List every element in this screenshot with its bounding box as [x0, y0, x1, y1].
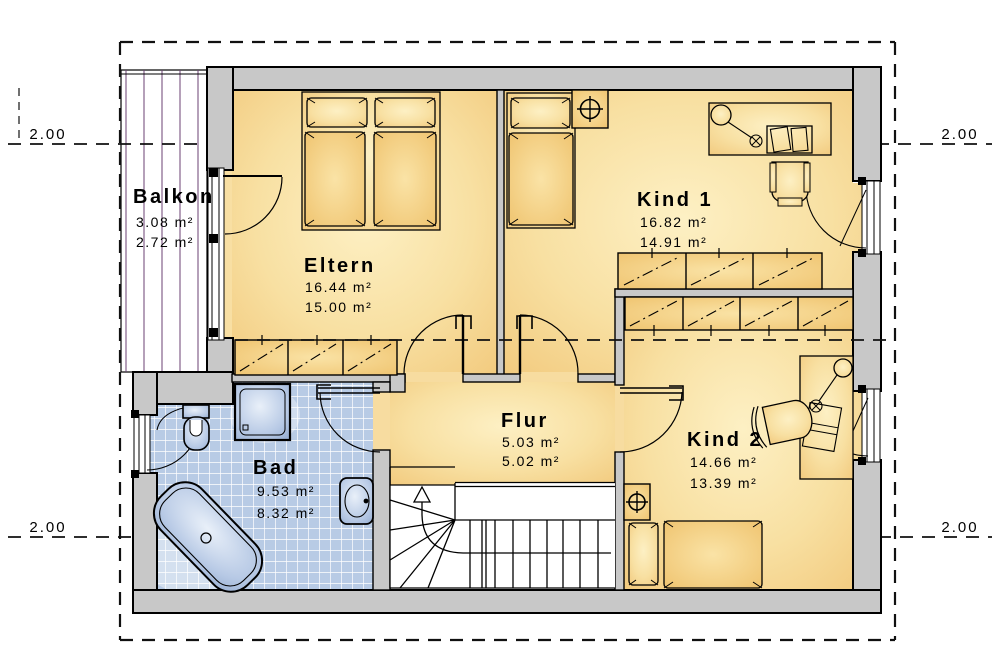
- chair-kind1: [770, 162, 810, 206]
- dim-top-left: 2.00: [29, 126, 66, 143]
- room-eltern-area-net: 15.00 m²: [305, 299, 372, 315]
- wall-left-upper: [133, 372, 157, 415]
- dim-bottom-left: 2.00: [29, 519, 66, 536]
- dim-bottom-right: 2.00: [941, 519, 978, 536]
- floor-plan-drawing: Balkon 3.08 m² 2.72 m² Eltern 16.44 m² 1…: [0, 0, 1000, 657]
- room-kind2-area-gross: 14.66 m²: [690, 454, 757, 470]
- shower: [235, 384, 290, 440]
- room-bad-area-gross: 9.53 m²: [257, 483, 315, 499]
- room-kind1-area-net: 14.91 m²: [640, 234, 707, 250]
- wall-bad-right: [373, 450, 390, 590]
- room-balkon-area-net: 2.72 m²: [136, 234, 194, 250]
- bed-kind2: [629, 521, 762, 588]
- room-eltern-area-gross: 16.44 m²: [305, 279, 372, 295]
- chimney-kind2: [624, 484, 650, 520]
- wall-left-lower: [133, 473, 157, 590]
- wall-top: [207, 67, 881, 90]
- wall-balcony-lower: [207, 338, 233, 372]
- bed-eltern: [302, 92, 440, 230]
- toilet: [183, 405, 209, 450]
- bed-kind1: [507, 93, 575, 228]
- room-kind1-area-gross: 16.82 m²: [640, 214, 707, 230]
- room-flur-area-gross: 5.03 m²: [502, 434, 560, 450]
- wall-eltern-kind1: [497, 90, 504, 378]
- room-bad-area-net: 8.32 m²: [257, 505, 315, 521]
- room-kind2-area-net: 13.39 m²: [690, 475, 757, 491]
- bathroom-sink: [340, 478, 373, 524]
- wall-right-middle: [853, 252, 881, 391]
- wall-bottom: [133, 590, 881, 613]
- wardrobe-kind2: [625, 297, 853, 336]
- room-flur-label: Flur: [501, 410, 549, 432]
- wall-right-upper: [853, 67, 881, 181]
- room-balkon-label: Balkon: [133, 186, 215, 208]
- room-kind1-label: Kind 1: [637, 189, 713, 211]
- wardrobe-eltern: [235, 335, 397, 375]
- room-eltern-label: Eltern: [304, 255, 376, 277]
- wall-stair-kind2: [615, 452, 624, 590]
- room-flur-area-net: 5.02 m²: [502, 453, 560, 469]
- wall-flur-kind2-upper: [615, 289, 624, 385]
- room-bad-label: Bad: [253, 457, 298, 479]
- dim-top-right: 2.00: [941, 126, 978, 143]
- room-kind2-label: Kind 2: [687, 429, 763, 451]
- floor-plan-canvas: Balkon 3.08 m² 2.72 m² Eltern 16.44 m² 1…: [0, 0, 1000, 657]
- wall-flur-top-right: [578, 374, 615, 382]
- desk-lamp-icon: [834, 359, 852, 377]
- wardrobe-kind1: [618, 248, 822, 289]
- wall-flur-top-mid: [463, 374, 520, 382]
- wall-kind1-kind2: [615, 289, 853, 297]
- wall-balcony-upper: [207, 67, 233, 170]
- chimney-kind1: [572, 90, 608, 128]
- room-balkon-area-gross: 3.08 m²: [136, 214, 194, 230]
- staircase: [390, 467, 615, 588]
